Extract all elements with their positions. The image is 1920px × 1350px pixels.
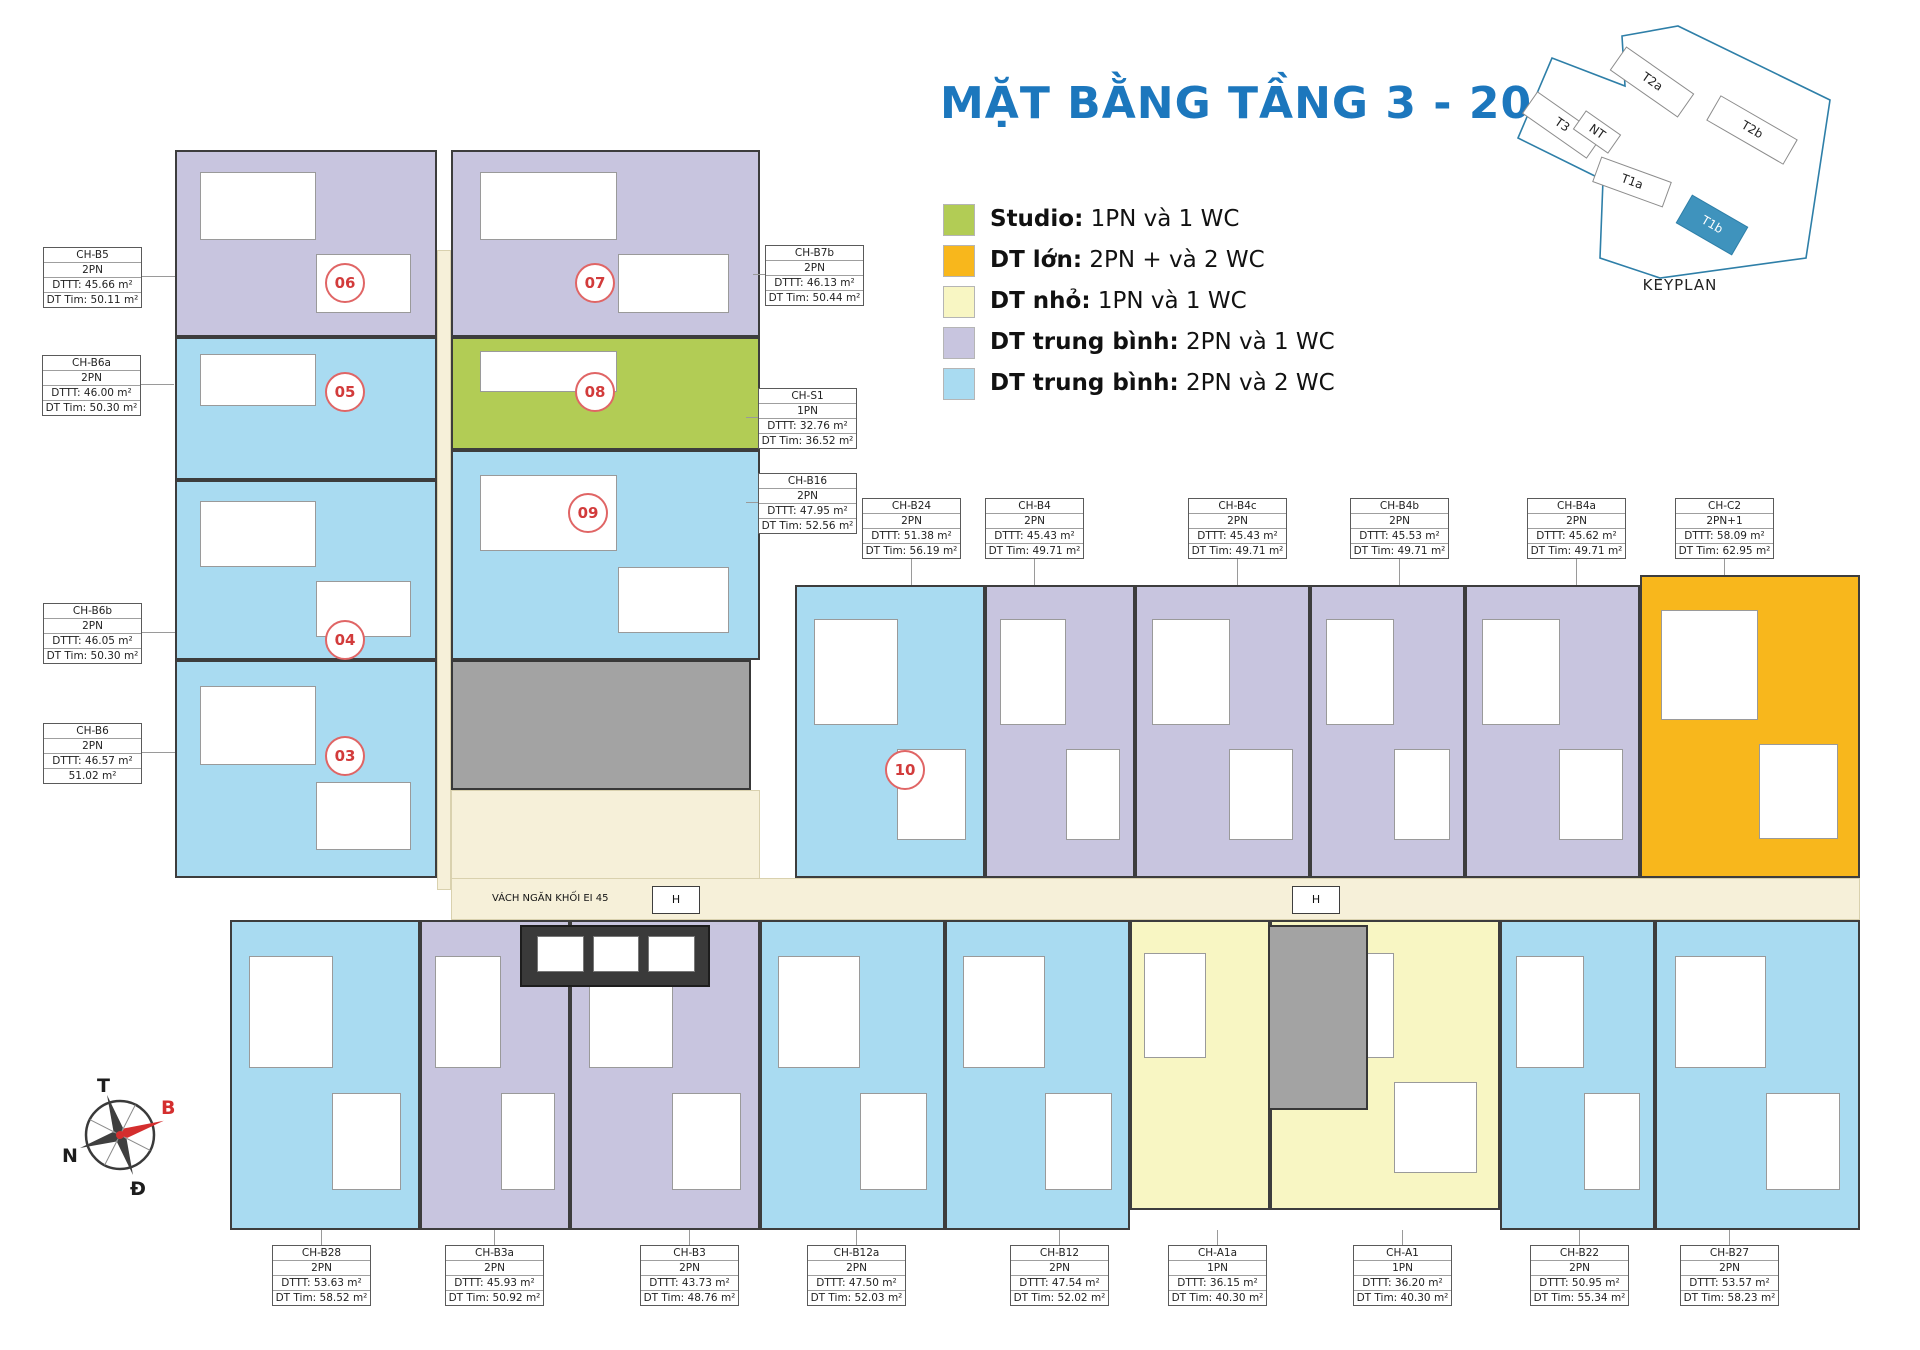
unit-number-10: 10 — [885, 750, 925, 790]
apartment-dttim: DT Tim: 49.71 m² — [1351, 543, 1448, 558]
label-leader-line — [140, 632, 175, 633]
apartment-dttt: DTTT: 46.13 m² — [766, 275, 863, 290]
apartment-dttim: DT Tim: 50.92 m² — [446, 1290, 543, 1305]
unit-19-area — [1130, 920, 1270, 1210]
label-leader-line — [1579, 1230, 1580, 1245]
room-outline — [1326, 619, 1394, 725]
room-outline — [1394, 1082, 1477, 1173]
apartment-id: CH-B7b — [766, 246, 863, 260]
apartment-type: 2PN — [808, 1260, 905, 1275]
apartment-id: CH-A1a — [1169, 1246, 1266, 1260]
apartment-dttim: DT Tim: 56.19 m² — [863, 543, 960, 558]
room-outline — [778, 956, 860, 1068]
apartment-type: 2PN — [766, 260, 863, 275]
room-outline — [200, 686, 316, 765]
apartment-label-ch-b16: CH-B162PNDTTT: 47.95 m²DT Tim: 52.56 m² — [758, 473, 857, 534]
label-leader-line — [494, 1230, 495, 1245]
apartment-dttt: DTTT: 46.57 m² — [44, 753, 141, 768]
label-leader-line — [1059, 1230, 1060, 1245]
apartment-label-ch-b5: CH-B52PNDTTT: 45.66 m²DT Tim: 50.11 m² — [43, 247, 142, 308]
unit-number-09: 09 — [568, 493, 608, 533]
apartment-label-ch-b22: CH-B222PNDTTT: 50.95 m²DT Tim: 55.34 m² — [1530, 1245, 1629, 1306]
unit-06-area — [175, 150, 437, 337]
apartment-dttt: DTTT: 43.73 m² — [641, 1275, 738, 1290]
room-outline — [200, 172, 316, 240]
apartment-type: 2PN — [1681, 1260, 1778, 1275]
legend-swatch-studio — [943, 204, 975, 236]
apartment-dttt: DTTT: 45.93 m² — [446, 1275, 543, 1290]
apartment-label-ch-c2: CH-C22PN+1DTTT: 58.09 m²DT Tim: 62.95 m² — [1675, 498, 1774, 559]
legend-label-bold: Studio: — [990, 206, 1083, 232]
apartment-dttim: DT Tim: 50.30 m² — [43, 400, 140, 415]
label-leader-line — [1729, 1230, 1730, 1245]
apartment-type: 2PN — [1528, 513, 1625, 528]
apartment-id: CH-B28 — [273, 1246, 370, 1260]
apartment-label-ch-b6b: CH-B6b2PNDTTT: 46.05 m²DT Tim: 50.30 m² — [43, 603, 142, 664]
room-outline — [1516, 956, 1584, 1068]
apartment-dttim: DT Tim: 52.02 m² — [1011, 1290, 1108, 1305]
elevator-door — [593, 936, 640, 973]
unit-13-area — [1310, 585, 1465, 878]
room-outline — [672, 1093, 741, 1190]
room-outline — [1661, 610, 1758, 720]
unit-10-area — [795, 585, 985, 878]
apartment-id: CH-B6b — [44, 604, 141, 618]
label-leader-line — [1237, 556, 1238, 585]
room-outline — [1000, 619, 1066, 725]
legend-label: DT nhỏ: 1PN và 1 WC — [990, 288, 1247, 314]
compass-rose: T B N Đ — [48, 1058, 198, 1208]
apartment-label-ch-b4c: CH-B4c2PNDTTT: 45.43 m²DT Tim: 49.71 m² — [1188, 498, 1287, 559]
keyplan-caption: KEYPLAN — [1500, 276, 1860, 294]
apartment-label-ch-b12: CH-B122PNDTTT: 47.54 m²DT Tim: 52.02 m² — [1010, 1245, 1109, 1306]
room-outline — [200, 354, 316, 406]
legend-label: DT lớn: 2PN + và 2 WC — [990, 247, 1265, 273]
apartment-dttt: DTTT: 45.53 m² — [1351, 528, 1448, 543]
apartment-label-ch-b28: CH-B282PNDTTT: 53.63 m²DT Tim: 58.52 m² — [272, 1245, 371, 1306]
unit-02-area — [230, 920, 420, 1230]
label-leader-line — [1576, 556, 1577, 585]
apartment-type: 2PN — [43, 370, 140, 385]
unit-11-area — [985, 585, 1135, 878]
elevator-door — [537, 936, 584, 973]
apartment-dttt: DTTT: 45.43 m² — [1189, 528, 1286, 543]
label-leader-line — [140, 276, 175, 277]
apartment-dttim: DT Tim: 49.71 m² — [1528, 543, 1625, 558]
apartment-dttt: DTTT: 53.57 m² — [1681, 1275, 1778, 1290]
unit-17-area — [1500, 920, 1655, 1230]
apartment-dttt: DTTT: 36.15 m² — [1169, 1275, 1266, 1290]
legend-label-bold: DT nhỏ: — [990, 288, 1091, 314]
apartment-type: 2PN — [863, 513, 960, 528]
label-leader-line — [139, 384, 174, 385]
compass-needle — [118, 1116, 165, 1140]
apartment-type: 1PN — [759, 403, 856, 418]
room-outline — [1045, 1093, 1112, 1190]
apartment-type: 2PN — [1531, 1260, 1628, 1275]
label-leader-line — [1399, 556, 1400, 585]
apartment-type: 2PN — [986, 513, 1083, 528]
legend-label-bold: DT lớn: — [990, 247, 1082, 273]
apartment-type: 2PN — [641, 1260, 738, 1275]
apartment-type: 2PN — [446, 1260, 543, 1275]
room-outline — [1759, 744, 1839, 839]
apartment-type: 2PN — [44, 262, 141, 277]
label-leader-line — [1217, 1230, 1218, 1245]
unit-21-area — [760, 920, 945, 1230]
legend-swatch-medium_2wc — [943, 368, 975, 400]
apartment-id: CH-B16 — [759, 474, 856, 488]
unit-number-05: 05 — [325, 372, 365, 412]
compass-label-left: N — [62, 1145, 78, 1167]
apartment-label-ch-b4: CH-B42PNDTTT: 45.43 m²DT Tim: 49.71 m² — [985, 498, 1084, 559]
apartment-id: CH-B27 — [1681, 1246, 1778, 1260]
legend-swatch-small — [943, 286, 975, 318]
apartment-dttt: DTTT: 47.54 m² — [1011, 1275, 1108, 1290]
corridor-vertical — [437, 250, 451, 890]
label-leader-line — [321, 1230, 322, 1245]
unit-number-08: 08 — [575, 372, 615, 412]
unit-20-area — [945, 920, 1130, 1230]
apartment-id: CH-B5 — [44, 248, 141, 262]
legend-label: Studio: 1PN và 1 WC — [990, 206, 1239, 232]
apartment-type: 2PN — [1011, 1260, 1108, 1275]
apartment-id: CH-B12a — [808, 1246, 905, 1260]
apartment-label-ch-b24: CH-B242PNDTTT: 51.38 m²DT Tim: 56.19 m² — [862, 498, 961, 559]
apartment-dttim: DT Tim: 36.52 m² — [759, 433, 856, 448]
apartment-dttim: DT Tim: 49.71 m² — [1189, 543, 1286, 558]
hydrant-box: H — [652, 886, 700, 914]
label-leader-line — [753, 274, 765, 275]
plan-annotation: VÁCH NGĂN KHỐI EI 45 — [492, 893, 662, 905]
apartment-label-ch-b4b: CH-B4b2PNDTTT: 45.53 m²DT Tim: 49.71 m² — [1350, 498, 1449, 559]
apartment-dttim: DT Tim: 50.30 m² — [44, 648, 141, 663]
compass-label-bottom: Đ — [130, 1178, 146, 1200]
apartment-dttim: DT Tim: 50.11 m² — [44, 292, 141, 307]
apartment-dttim: DT Tim: 55.34 m² — [1531, 1290, 1628, 1305]
unit-number-04: 04 — [325, 620, 365, 660]
unit-14-area — [1465, 585, 1640, 878]
apartment-dttim: DT Tim: 58.52 m² — [273, 1290, 370, 1305]
apartment-dttt: DTTT: 32.76 m² — [759, 418, 856, 433]
apartment-dttt: DTTT: 46.05 m² — [44, 633, 141, 648]
corridor-lobby — [451, 790, 760, 880]
legend-label: DT trung bình: 2PN và 1 WC — [990, 329, 1335, 355]
unit-number-07: 07 — [575, 263, 615, 303]
room-outline — [963, 956, 1045, 1068]
apartment-dttt: DTTT: 51.38 m² — [863, 528, 960, 543]
room-outline — [1394, 749, 1450, 841]
keyplan-building-t1a: T1a — [1593, 157, 1671, 207]
legend-swatch-large — [943, 245, 975, 277]
apartment-id: CH-C2 — [1676, 499, 1773, 513]
elevator-door — [648, 936, 695, 973]
apartment-dttt: DTTT: 46.00 m² — [43, 385, 140, 400]
label-leader-line — [746, 417, 758, 418]
room-outline — [1675, 956, 1765, 1068]
label-leader-line — [1402, 1230, 1403, 1245]
unit-04-area — [175, 480, 437, 660]
apartment-id: CH-B4 — [986, 499, 1083, 513]
apartment-dttim: DT Tim: 48.76 m² — [641, 1290, 738, 1305]
apartment-label-ch-b7b: CH-B7b2PNDTTT: 46.13 m²DT Tim: 50.44 m² — [765, 245, 864, 306]
apartment-id: CH-B4a — [1528, 499, 1625, 513]
label-leader-line — [746, 502, 758, 503]
apartment-type: 2PN — [44, 618, 141, 633]
apartment-id: CH-B4b — [1351, 499, 1448, 513]
elevator-bank — [520, 925, 710, 987]
apartment-dttt: DTTT: 47.95 m² — [759, 503, 856, 518]
unit-15-area — [1640, 575, 1860, 878]
apartment-type: 2PN — [44, 738, 141, 753]
apartment-dttt: DTTT: 45.43 m² — [986, 528, 1083, 543]
unit-number-06: 06 — [325, 263, 365, 303]
apartment-dttim: DT Tim: 52.56 m² — [759, 518, 856, 533]
apartment-label-ch-b3a: CH-B3a2PNDTTT: 45.93 m²DT Tim: 50.92 m² — [445, 1245, 544, 1306]
keyplan-building-t2a: T2a — [1610, 47, 1693, 117]
apartment-dttim: DT Tim: 40.30 m² — [1169, 1290, 1266, 1305]
room-outline — [1152, 619, 1229, 725]
floor-plan-page: MẶT BẰNG TẦNG 3 - 20 Studio: 1PN và 1 WC… — [0, 0, 1920, 1350]
label-leader-line — [689, 1230, 690, 1245]
apartment-id: CH-B3 — [641, 1246, 738, 1260]
apartment-type: 2PN+1 — [1676, 513, 1773, 528]
room-outline — [332, 1093, 401, 1190]
room-outline — [1559, 749, 1623, 841]
unit-number-03: 03 — [325, 736, 365, 776]
apartment-dttt: DTTT: 50.95 m² — [1531, 1275, 1628, 1290]
room-outline — [435, 956, 501, 1068]
room-outline — [1066, 749, 1121, 841]
room-outline — [249, 956, 333, 1068]
label-leader-line — [856, 1230, 857, 1245]
legend-label-bold: DT trung bình: — [990, 329, 1179, 355]
apartment-dttim: DT Tim: 52.03 m² — [808, 1290, 905, 1305]
room-outline — [316, 782, 411, 850]
legend-label-bold: DT trung bình: — [990, 370, 1179, 396]
apartment-type: 2PN — [1351, 513, 1448, 528]
room-outline — [1229, 749, 1293, 841]
legend-swatch-medium_1wc — [943, 327, 975, 359]
label-leader-line — [140, 752, 175, 753]
keyplan-map: T3NTT2aT1aT2bT1b — [1500, 20, 1860, 280]
apartment-type: 2PN — [1189, 513, 1286, 528]
apartment-type: 2PN — [273, 1260, 370, 1275]
apartment-id: CH-B22 — [1531, 1246, 1628, 1260]
apartment-dttt: DTTT: 45.66 m² — [44, 277, 141, 292]
room-outline — [1766, 1093, 1840, 1190]
unit-16-area — [1655, 920, 1860, 1230]
legend-label: DT trung bình: 2PN và 2 WC — [990, 370, 1335, 396]
apartment-id: CH-B6a — [43, 356, 140, 370]
apartment-dttim: 51.02 m² — [44, 768, 141, 783]
apartment-type: 2PN — [759, 488, 856, 503]
compass-label-top: T — [97, 1075, 110, 1097]
apartment-dttt: DTTT: 36.20 m² — [1354, 1275, 1451, 1290]
label-leader-line — [1034, 556, 1035, 585]
apartment-id: CH-S1 — [759, 389, 856, 403]
room-outline — [1144, 953, 1206, 1058]
room-outline — [814, 619, 898, 725]
apartment-dttim: DT Tim: 62.95 m² — [1676, 543, 1773, 558]
compass-label-right: B — [161, 1097, 175, 1119]
apartment-label-ch-b6a: CH-B6a2PNDTTT: 46.00 m²DT Tim: 50.30 m² — [42, 355, 141, 416]
room-outline — [480, 172, 616, 240]
apartment-label-ch-a1: CH-A11PNDTTT: 36.20 m²DT Tim: 40.30 m² — [1353, 1245, 1452, 1306]
apartment-id: CH-B12 — [1011, 1246, 1108, 1260]
keyplan-building-t2b: T2b — [1707, 96, 1797, 164]
apartment-label-ch-b4a: CH-B4a2PNDTTT: 45.62 m²DT Tim: 49.71 m² — [1527, 498, 1626, 559]
page-title: MẶT BẰNG TẦNG 3 - 20 — [940, 78, 1532, 129]
unit-05-area — [175, 337, 437, 480]
room-outline — [1482, 619, 1559, 725]
apartment-dttim: DT Tim: 40.30 m² — [1354, 1290, 1451, 1305]
room-outline — [200, 501, 316, 566]
apartment-dttt: DTTT: 53.63 m² — [273, 1275, 370, 1290]
apartment-type: 1PN — [1354, 1260, 1451, 1275]
room-outline — [618, 567, 730, 633]
keyplan-building-t1b: T1b — [1676, 195, 1747, 255]
hydrant-box: H — [1292, 886, 1340, 914]
apartment-dttt: DTTT: 47.50 m² — [808, 1275, 905, 1290]
apartment-label-ch-a1a: CH-A1a1PNDTTT: 36.15 m²DT Tim: 40.30 m² — [1168, 1245, 1267, 1306]
label-leader-line — [911, 556, 912, 585]
unit-09-area — [451, 450, 760, 660]
room-outline — [860, 1093, 927, 1190]
unit-12-area — [1135, 585, 1310, 878]
apartment-id: CH-B4c — [1189, 499, 1286, 513]
unit-07-area — [451, 150, 760, 337]
room-outline — [618, 254, 730, 313]
apartment-id: CH-B3a — [446, 1246, 543, 1260]
apartment-label-ch-b27: CH-B272PNDTTT: 53.57 m²DT Tim: 58.23 m² — [1680, 1245, 1779, 1306]
apartment-label-ch-b12a: CH-B12a2PNDTTT: 47.50 m²DT Tim: 52.03 m² — [807, 1245, 906, 1306]
apartment-label-ch-b3: CH-B32PNDTTT: 43.73 m²DT Tim: 48.76 m² — [640, 1245, 739, 1306]
apartment-id: CH-A1 — [1354, 1246, 1451, 1260]
apartment-id: CH-B24 — [863, 499, 960, 513]
core-bottom — [1268, 925, 1368, 1110]
apartment-label-ch-s1: CH-S11PNDTTT: 32.76 m²DT Tim: 36.52 m² — [758, 388, 857, 449]
apartment-id: CH-B6 — [44, 724, 141, 738]
core-top — [451, 660, 751, 790]
apartment-label-ch-b6: CH-B62PNDTTT: 46.57 m²51.02 m² — [43, 723, 142, 784]
apartment-dttim: DT Tim: 58.23 m² — [1681, 1290, 1778, 1305]
apartment-type: 1PN — [1169, 1260, 1266, 1275]
apartment-dttim: DT Tim: 49.71 m² — [986, 543, 1083, 558]
apartment-dttt: DTTT: 45.62 m² — [1528, 528, 1625, 543]
room-outline — [501, 1093, 556, 1190]
apartment-dttt: DTTT: 58.09 m² — [1676, 528, 1773, 543]
room-outline — [1584, 1093, 1640, 1190]
apartment-dttim: DT Tim: 50.44 m² — [766, 290, 863, 305]
unit-03-area — [175, 660, 437, 878]
